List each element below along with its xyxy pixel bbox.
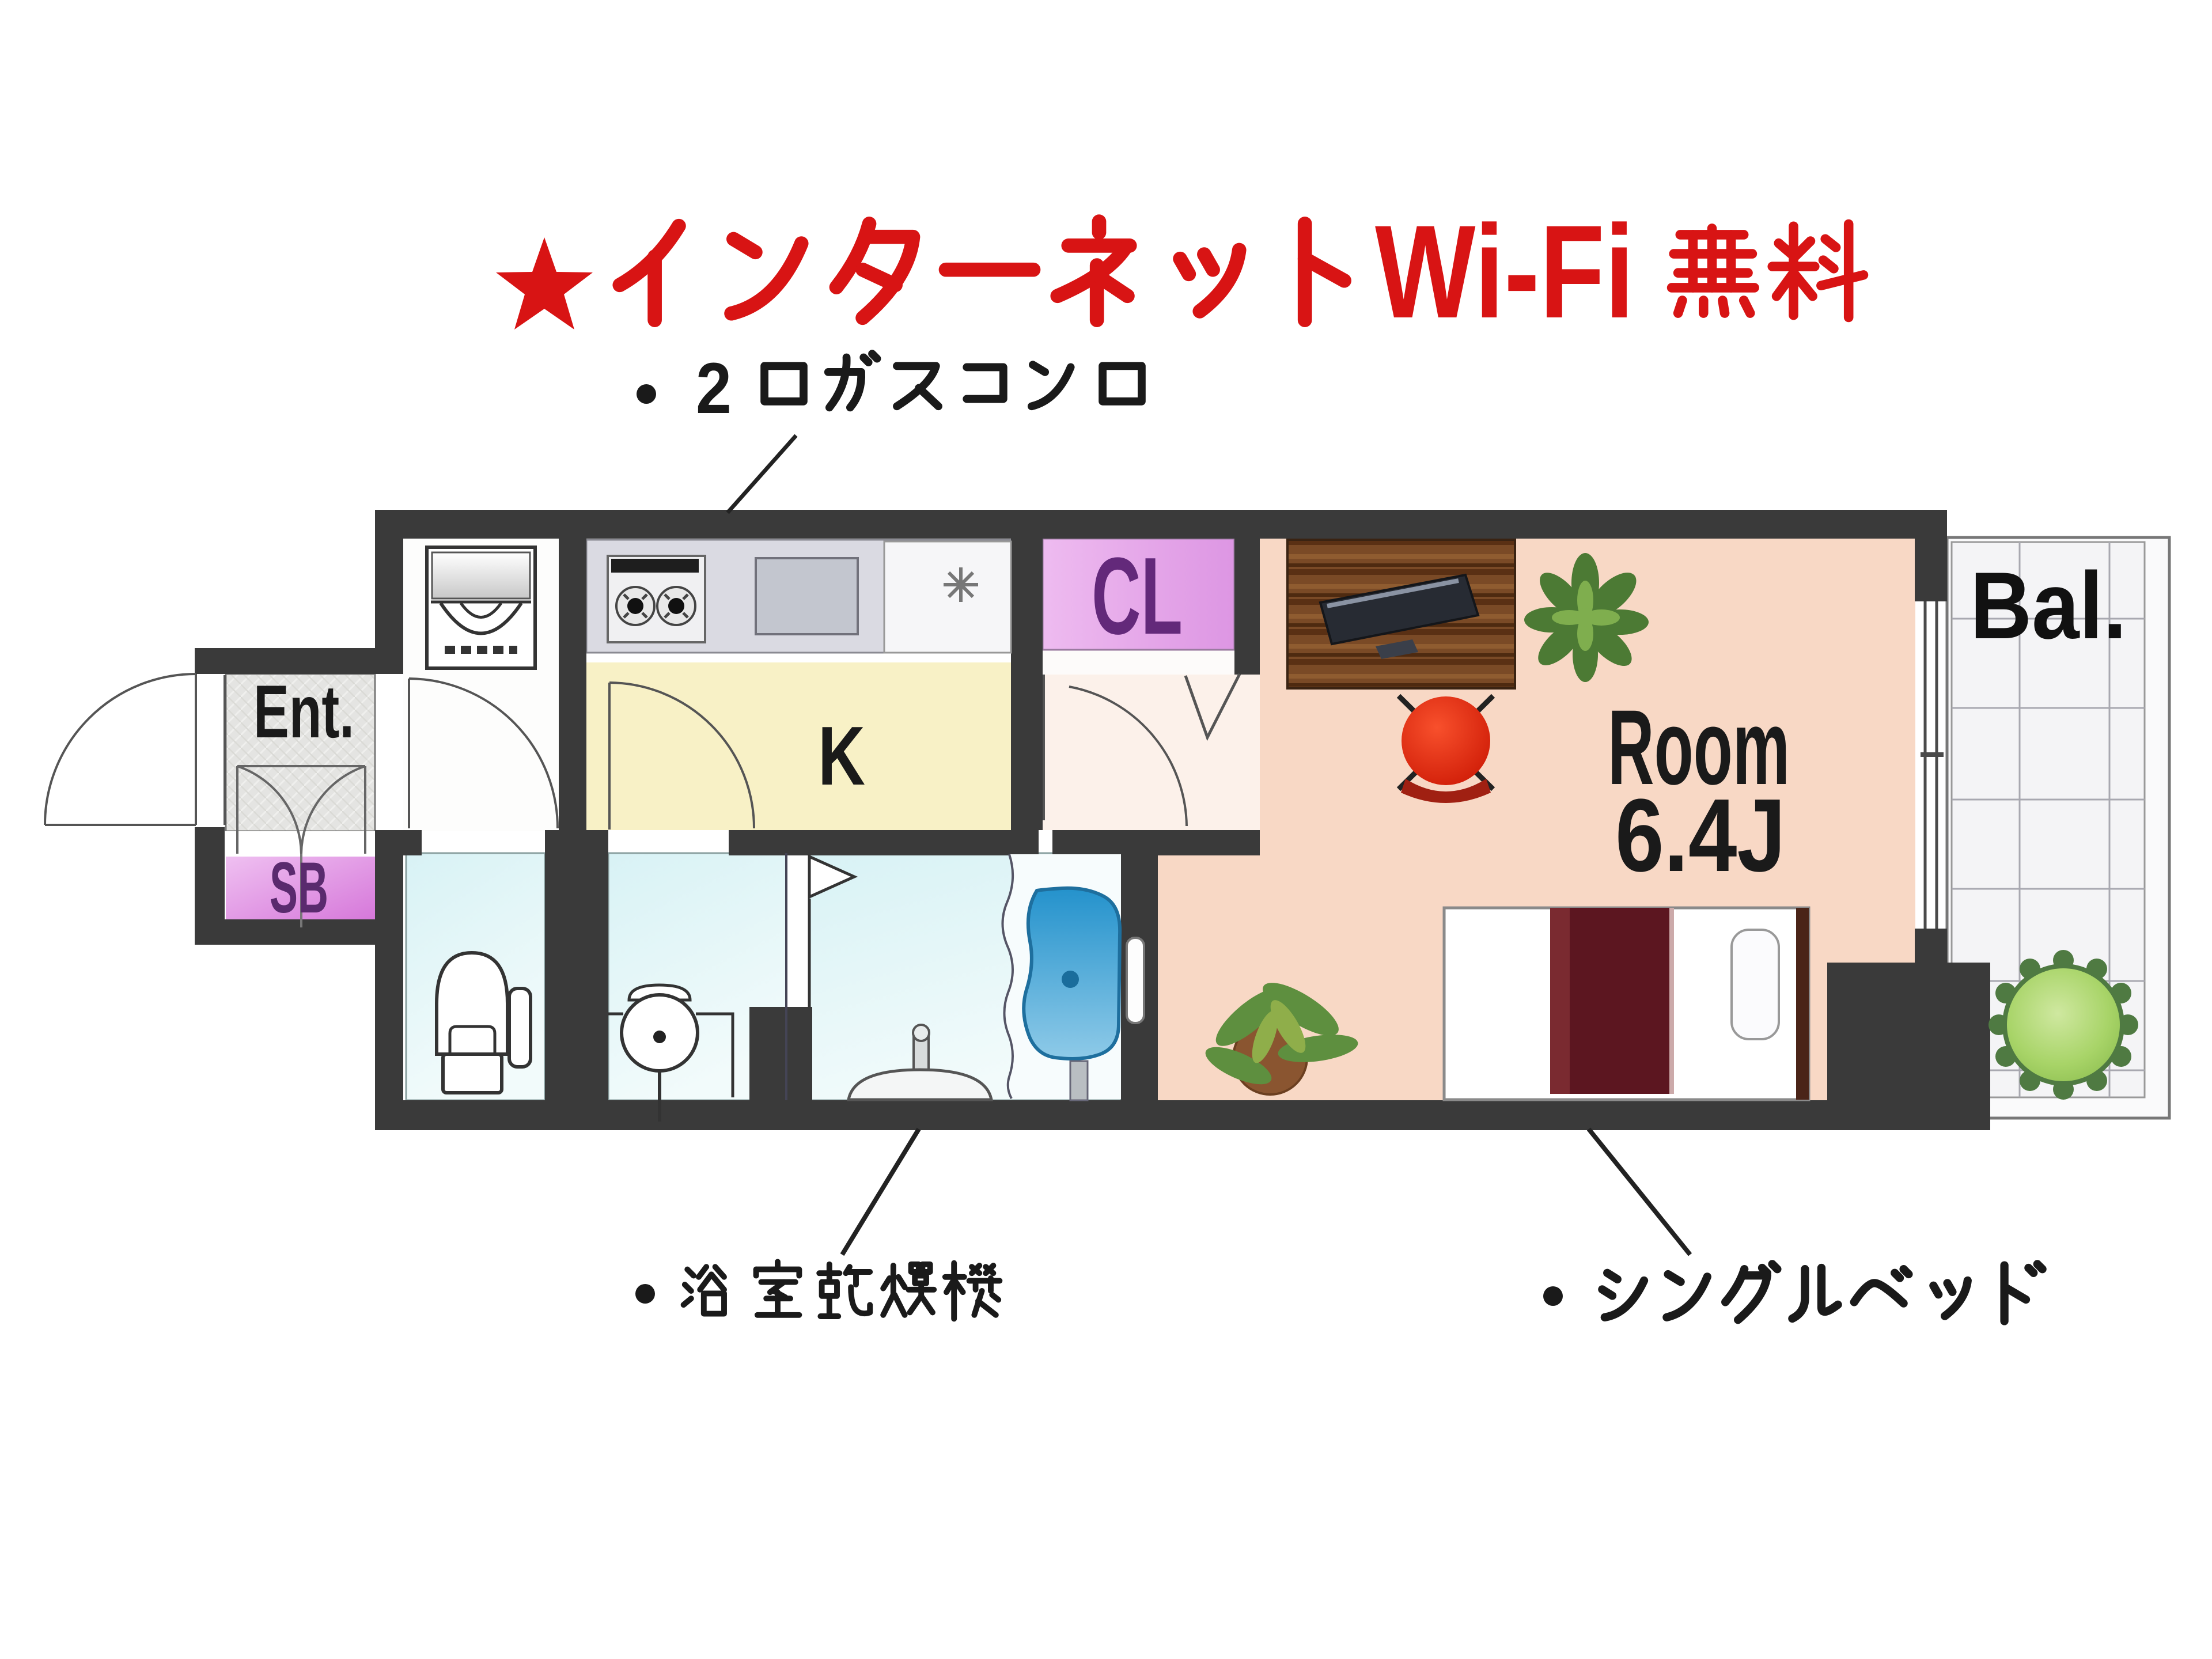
svg-text:Ent.: Ent. [253,669,354,753]
svg-text:CL: CL [1092,535,1183,657]
svg-text:6.4J: 6.4J [1615,778,1786,893]
svg-text:SB: SB [270,848,328,928]
svg-text:Wi-Fi: Wi-Fi [1375,198,1634,346]
svg-text:2: 2 [696,349,732,429]
svg-text:Bal.: Bal. [1970,552,2127,658]
svg-text:K: K [818,709,865,802]
